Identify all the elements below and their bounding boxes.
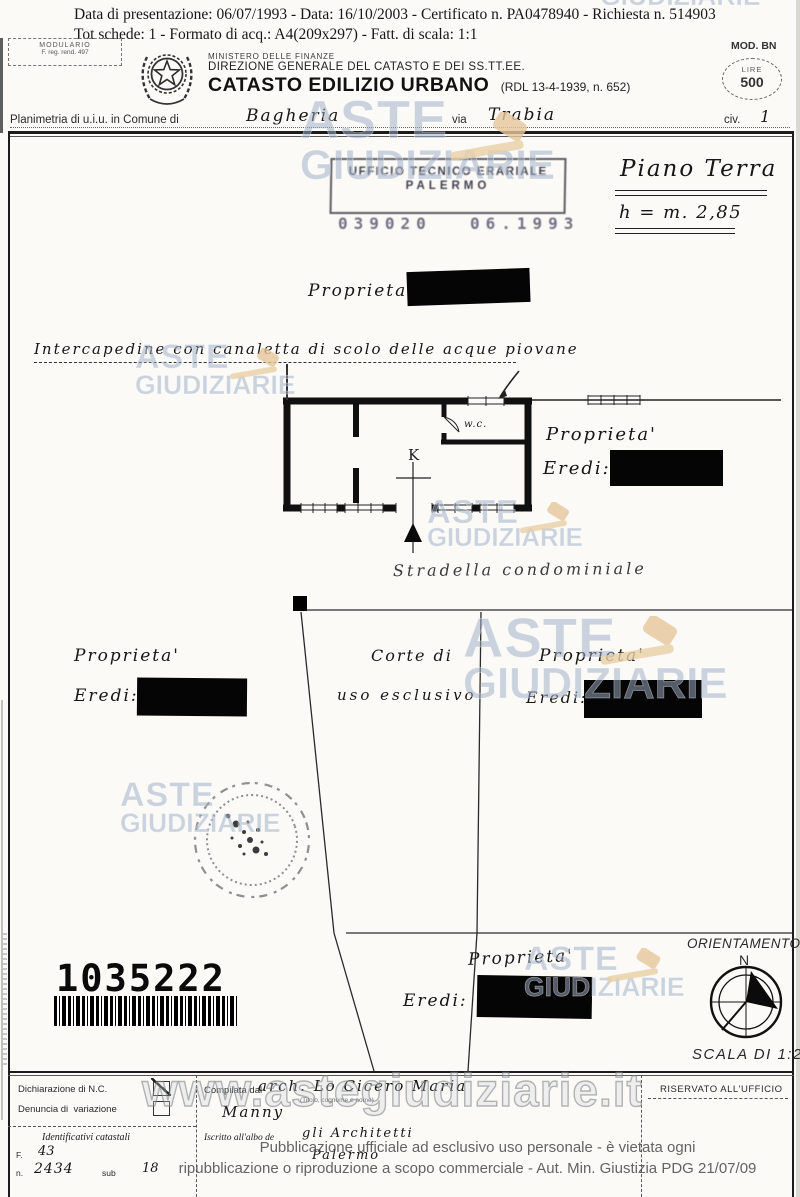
court-label-line2: uso esclusivo [337,686,477,704]
intercapedine-note: Intercapedine con canaletta di scolo del… [34,340,579,358]
office-stamp-line1: UFFICIO TECNICO ERARIALE [332,166,564,178]
eredi-label-right: Eredi: [543,458,611,479]
office-stamp: UFFICIO TECNICO ERARIALE PALERMO [330,158,567,214]
redaction-bottom [477,975,593,1019]
wc-label: w.c. [464,419,487,430]
office-stamp-line2: PALERMO [332,180,564,192]
floor-label: Piano Terra [620,156,777,182]
kitchen-label: K [408,446,419,464]
street-label: Stradella condominiale [393,559,647,580]
eredi-label-midright: Eredi: [526,688,588,707]
height-label: h = m. 2,85 [619,202,742,223]
bottom-windows [301,503,514,514]
disclaimer-line2: ripubblicazione o riproduzione a scopo c… [135,1160,800,1177]
eredi-label-bottom: Eredi: [403,991,468,1011]
redaction-top [406,268,530,306]
scale-label: SCALA DI 1:2 [692,1046,800,1063]
property-label-bottom: Proprieta' [468,946,575,970]
court-label-line1: Corte di [371,646,453,665]
scanned-cadastral-document: Data di presentazione: 06/07/1993 - Data… [0,0,800,1197]
barcode-bars [54,996,237,1026]
redaction-left [137,678,247,717]
barcode-number: 1035222 [56,957,226,1000]
disclaimer-line1: Pubblicazione ufficiale ad esclusivo uso… [155,1139,800,1156]
property-label-left: Proprieta' [74,646,180,666]
eredi-label-left: Eredi: [74,686,139,706]
compass-north-label: N [739,952,749,968]
property-label-top: Proprieta' [308,281,414,301]
ink-blot [226,814,269,857]
orientation-label: ORIENTAMENTO [687,936,800,951]
redaction-midright [584,680,702,718]
property-label-midright: Proprieta' [539,646,645,666]
property-label-right: Proprieta' [546,424,657,445]
boundary-marker-square [293,596,307,611]
redaction-right [610,450,723,486]
compass-needle [746,971,778,1009]
